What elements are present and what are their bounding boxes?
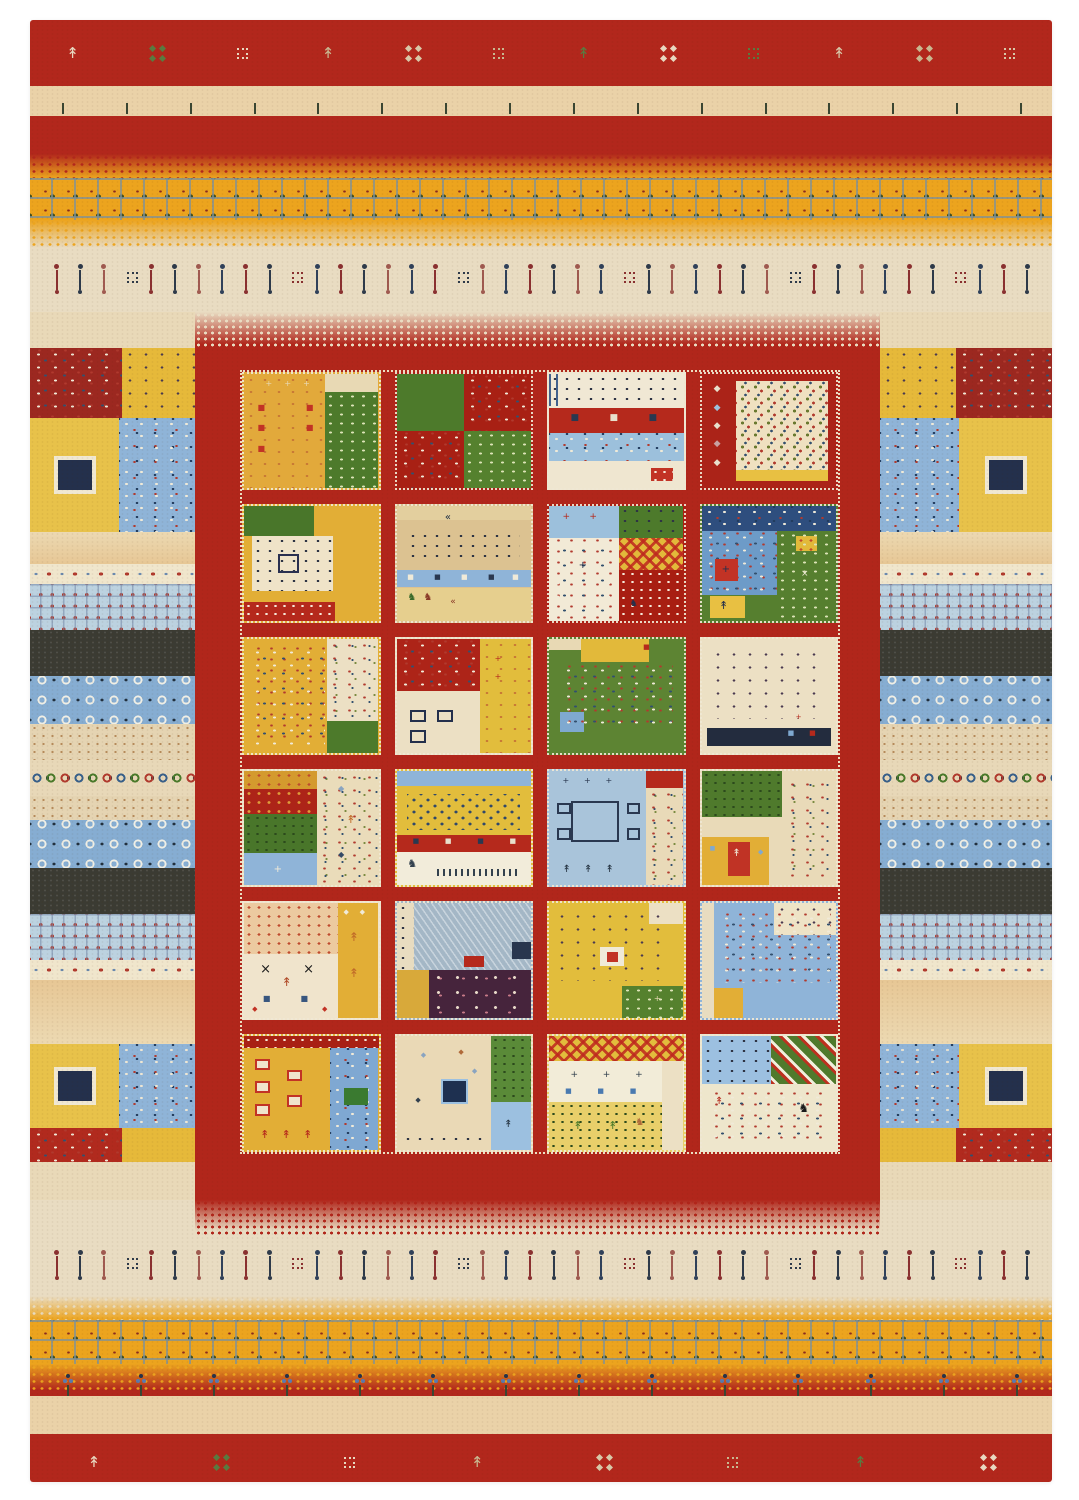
side-stripe-17 — [30, 1044, 195, 1128]
pin-motif-icon — [411, 270, 413, 290]
flower-motif-icon — [651, 1385, 653, 1396]
flower-motif-icon — [1016, 1385, 1018, 1396]
color-patch — [244, 506, 314, 536]
stripe-segment — [30, 1044, 119, 1128]
pin-motif-icon — [671, 270, 673, 290]
color-patch — [327, 639, 378, 721]
color-patch — [255, 1059, 270, 1070]
pin-motif-icon — [979, 270, 981, 290]
side-stripe-4 — [30, 532, 195, 564]
diamond-cluster-motif — [594, 1451, 616, 1473]
pin-motif-icon — [174, 270, 176, 290]
tree-icon: ↟ — [322, 46, 335, 61]
side-stripe-3 — [880, 418, 1052, 532]
diamond-cluster-icon — [154, 49, 161, 56]
square-motif-icon: ■ — [565, 1088, 572, 1095]
stripe-segment — [880, 980, 1052, 1044]
tree-motif-icon: ↟ — [719, 600, 728, 611]
cross-motif-icon: + — [303, 380, 310, 388]
flower-motif-icon — [701, 103, 703, 114]
side-stripe-13 — [30, 868, 195, 914]
flower-motif-icon — [765, 103, 767, 114]
stripe-segment — [30, 630, 195, 676]
diamond-cluster-motif — [658, 42, 680, 64]
pin-motif-icon — [198, 1256, 200, 1276]
stipple-gold-to-red — [30, 1364, 1052, 1390]
color-patch — [344, 1088, 368, 1105]
color-patch — [244, 602, 335, 620]
photo-canvas: ↟↟↟↟■■■■■+++■■■◆◆◆◆◆«■■■■■♞♞«+++♞+↟×++■■… — [0, 0, 1079, 1500]
x-motif-icon: × — [260, 963, 271, 976]
color-patch — [619, 506, 684, 538]
stripe-segment — [30, 1162, 195, 1200]
navy-square-motif — [985, 1067, 1027, 1105]
dotted-square-icon — [127, 1258, 138, 1269]
pin-motif-icon — [56, 270, 58, 290]
stripe-segment — [880, 348, 956, 418]
dotted-square-motif — [232, 42, 254, 64]
pin-motif-icon — [695, 1256, 697, 1276]
stipple-red-to-gold — [30, 154, 1052, 178]
color-patch — [736, 381, 827, 470]
flower-motif-icon — [254, 103, 256, 114]
side-stripe-18 — [30, 1128, 195, 1162]
tree-icon: ↟ — [66, 46, 79, 61]
side-stripe-10 — [880, 760, 1052, 796]
side-stripe-15 — [880, 960, 1052, 980]
cross-motif-icon: + — [495, 655, 502, 663]
dotted-square-icon — [292, 1258, 303, 1269]
cross-motif-icon: + — [589, 513, 597, 522]
animal-motif-icon: ♞ — [798, 1102, 809, 1114]
color-patch — [702, 531, 777, 595]
color-patch — [549, 433, 684, 460]
dotted-square-icon — [955, 272, 966, 283]
pin-motif-icon — [695, 270, 697, 290]
patchwork-cell-r4c3: +++↟↟↟ — [547, 769, 686, 887]
pin-motif-icon — [387, 270, 389, 290]
color-patch — [557, 828, 570, 839]
panel-bottom-stipple — [195, 1200, 880, 1236]
side-stripe-10 — [30, 760, 195, 796]
diamond-motif-icon: ◆ — [360, 909, 365, 916]
pin-motif-icon — [482, 1256, 484, 1276]
diamond-cluster-icon — [665, 49, 672, 56]
square-motif-icon: ■ — [809, 730, 816, 737]
side-stripe-17 — [880, 1044, 1052, 1128]
animal-motif-icon: ♞ — [635, 1118, 644, 1128]
side-stripe-2 — [880, 348, 1052, 418]
side-stripe-8 — [880, 676, 1052, 724]
dotted-square-icon — [493, 48, 504, 59]
stripe-segment — [30, 724, 195, 760]
tree-motif-icon: ↟ — [349, 931, 359, 943]
color-patch — [244, 814, 317, 853]
diamond-motif-icon: ◆ — [714, 459, 721, 468]
color-patch — [549, 374, 684, 408]
side-stripe-7 — [30, 630, 195, 676]
diamond-motif-icon: ◆ — [344, 909, 349, 916]
diamond-motif-icon: ◆ — [252, 1006, 257, 1013]
flower-motif-icon — [126, 103, 128, 114]
side-stripe-5 — [880, 564, 1052, 584]
dotted-square-icon — [790, 1258, 801, 1269]
flower-motif-icon — [573, 103, 575, 114]
color-patch — [397, 431, 464, 488]
tree-motif-icon: ↟ — [282, 976, 292, 988]
patchwork-cell-r3c2: ++ — [395, 637, 534, 755]
pin-motif-icon — [150, 1256, 152, 1276]
gold-lattice-band — [30, 1320, 1052, 1364]
pin-motif-icon — [221, 1256, 223, 1276]
ivory-pin-band — [30, 1236, 1052, 1296]
dotted-square-icon — [237, 48, 248, 59]
pin-motif-icon — [221, 270, 223, 290]
color-patch — [736, 470, 827, 481]
patchwork-cell-r6c2: ◆◆◆◆↟ — [395, 1034, 534, 1152]
animal-motif-icon: ♞ — [407, 593, 416, 603]
flower-motif-icon — [359, 1385, 361, 1396]
stripe-segment — [959, 1044, 1052, 1128]
stripe-segment — [30, 532, 195, 564]
dotted-square-icon — [344, 1457, 355, 1468]
diamond-cluster-motif — [977, 1451, 999, 1473]
pin-motif-icon — [742, 270, 744, 290]
tree-motif-icon: ↟ — [504, 1120, 512, 1130]
ivory-flower-stripe — [30, 1396, 1052, 1434]
pin-motif-icon — [813, 270, 815, 290]
color-patch — [571, 801, 619, 842]
cross-motif-icon: + — [562, 777, 569, 785]
square-motif-icon: ■ — [571, 414, 580, 423]
side-stripe-8 — [30, 676, 195, 724]
square-motif-icon: ■ — [434, 574, 441, 581]
stripe-segment — [880, 820, 1052, 868]
color-patch — [410, 730, 426, 743]
color-patch — [714, 988, 744, 1018]
stripe-segment — [880, 868, 1052, 914]
pin-motif-icon — [1003, 270, 1005, 290]
diamond-cluster-icon — [921, 49, 928, 56]
color-patch — [549, 639, 581, 650]
rug-midfield: ■■■■■+++■■■◆◆◆◆◆«■■■■■♞♞«+++♞+↟×++■■■++◆… — [30, 312, 1052, 1200]
color-patch — [338, 903, 378, 1017]
flower-motif-icon — [724, 1385, 726, 1396]
pin-motif-icon — [1003, 1256, 1005, 1276]
square-motif-icon: ■ — [610, 414, 619, 423]
color-patch — [464, 431, 531, 488]
tree-motif-icon: ↟ — [260, 1129, 269, 1140]
stripe-segment — [880, 676, 1052, 724]
dotted-square-icon — [790, 272, 801, 283]
pin-motif-icon — [269, 1256, 271, 1276]
flower-motif-icon — [956, 103, 958, 114]
square-motif-icon: ■ — [710, 846, 716, 852]
color-patch — [325, 392, 379, 488]
flower-motif-icon — [62, 103, 64, 114]
dotted-square-icon — [955, 1258, 966, 1269]
color-patch — [255, 1104, 270, 1115]
color-patch — [397, 970, 429, 1018]
color-patch — [707, 1091, 831, 1144]
flower-motif-icon — [892, 103, 894, 114]
color-patch — [397, 506, 532, 520]
color-patch — [560, 664, 673, 728]
pin-motif-icon — [837, 1256, 839, 1276]
dotted-square-icon — [127, 272, 138, 283]
color-patch — [244, 1036, 379, 1049]
patchwork-grid: ■■■■■+++■■■◆◆◆◆◆«■■■■■♞♞«+++♞+↟×++■■■++◆… — [240, 370, 840, 1154]
diamond-cluster-motif — [147, 42, 169, 64]
pin-motif-strip — [56, 267, 1027, 293]
pin-motif-icon — [932, 1256, 934, 1276]
square-motif-icon: ■ — [257, 404, 265, 412]
cross-motif-icon: + — [274, 865, 282, 875]
dotted-square-icon — [624, 1258, 635, 1269]
color-patch — [549, 374, 561, 406]
diamond-cluster-motif — [402, 42, 424, 64]
pin-motif-icon — [505, 270, 507, 290]
pin-motif-strip — [56, 1253, 1027, 1279]
color-patch — [397, 639, 480, 692]
diamond-cluster-icon — [985, 1458, 992, 1465]
square-motif-icon: ■ — [461, 574, 468, 581]
cross-motif-icon: + — [266, 380, 273, 388]
flower-motif-icon — [943, 1385, 945, 1396]
side-stripe-12 — [30, 820, 195, 868]
patchwork-cell-r3c1 — [242, 637, 381, 755]
tree-icon: ↟ — [854, 1455, 867, 1470]
color-patch — [581, 639, 648, 662]
color-patch — [464, 956, 484, 967]
color-patch — [512, 942, 531, 959]
color-patch — [249, 646, 324, 747]
pin-motif-icon — [56, 1256, 58, 1276]
stripe-segment — [30, 348, 122, 418]
stipple-ivory-to-gold — [30, 1296, 1052, 1320]
border-motif-row: ↟↟↟ — [30, 1446, 1052, 1478]
patchwork-cell-r6c3: +++■■■↟↟♞ — [547, 1034, 686, 1152]
patchwork-cell-r3c3: ■ — [547, 637, 686, 755]
square-motif-icon: ■ — [788, 730, 795, 737]
ivory-pin-band — [30, 248, 1052, 312]
side-stripe-5 — [30, 564, 195, 584]
side-stripe-14 — [880, 914, 1052, 960]
tree-motif-icon: ↟ — [562, 865, 570, 875]
cross-motif-icon: + — [605, 777, 612, 785]
animal-motif-icon: ♞ — [630, 600, 638, 609]
side-stripe-18 — [880, 1128, 1052, 1162]
side-stripe-6 — [880, 584, 1052, 630]
tree-motif-icon: ↟ — [282, 1129, 291, 1140]
color-patch — [710, 648, 828, 719]
pin-motif-icon — [908, 1256, 910, 1276]
color-patch — [491, 1036, 531, 1102]
cross-motif-icon: + — [284, 380, 291, 388]
color-patch — [619, 570, 684, 620]
side-stripe-column-right — [880, 312, 1052, 1200]
color-patch — [622, 986, 684, 1018]
stripe-segment — [30, 980, 195, 1044]
dotted-square-icon — [748, 48, 759, 59]
tree-motif-icon: ↟ — [608, 1120, 617, 1131]
flower-motif-icon — [505, 1385, 507, 1396]
patchwork-cell-r1c2 — [395, 372, 534, 490]
patchwork-cell-r5c2 — [395, 901, 534, 1019]
pin-motif-icon — [434, 270, 436, 290]
pin-motif-icon — [719, 270, 721, 290]
square-motif-icon: ■ — [643, 644, 650, 651]
stripe-segment — [880, 564, 1052, 584]
tree-motif-icon: ↟ — [346, 814, 355, 825]
pin-motif-icon — [671, 1256, 673, 1276]
pin-motif-icon — [553, 270, 555, 290]
dotted-square-icon — [292, 272, 303, 283]
stripe-segment — [956, 348, 1052, 418]
gabbeh-rug-photo: ↟↟↟↟■■■■■+++■■■◆◆◆◆◆«■■■■■♞♞«+++♞+↟×++■■… — [30, 20, 1052, 1482]
stripe-segment — [30, 564, 195, 584]
side-stripe-11 — [880, 796, 1052, 820]
cross-motif-icon: + — [584, 777, 591, 785]
patchwork-cell-r2c1 — [242, 504, 381, 622]
pin-motif-icon — [411, 1256, 413, 1276]
diamond-cluster-motif — [211, 1451, 233, 1473]
flower-motif-icon — [637, 103, 639, 114]
color-patch — [397, 903, 414, 969]
patchwork-cell-r6c4: ♞↟ — [700, 1034, 839, 1152]
tree-motif-icon: ↟ — [715, 1097, 723, 1107]
stripe-segment — [880, 960, 1052, 980]
flower-motif-icon — [213, 1385, 215, 1396]
dotted-square-motif — [338, 1451, 360, 1473]
tree-icon: ↟ — [833, 46, 846, 61]
diamond-motif-icon: ◆ — [415, 1097, 420, 1104]
square-motif-icon: ■ — [300, 995, 308, 1003]
pin-motif-icon — [79, 270, 81, 290]
flower-motif-icon — [432, 1385, 434, 1396]
side-stripe-15 — [30, 960, 195, 980]
pin-motif-icon — [577, 1256, 579, 1276]
stripe-segment — [959, 418, 1052, 532]
color-patch — [244, 903, 338, 953]
cross-motif-icon: + — [571, 1071, 579, 1080]
pin-motif-icon — [884, 270, 886, 290]
side-stripe-9 — [880, 724, 1052, 760]
dotted-square-motif — [743, 42, 765, 64]
color-patch — [437, 869, 520, 876]
color-patch — [244, 789, 317, 814]
patchwork-cell-r4c4: ↟■◆ — [700, 769, 839, 887]
diamond-cluster-icon — [218, 1458, 225, 1465]
stripe-segment — [880, 584, 1052, 630]
cross-motif-icon: + — [562, 513, 570, 522]
stripe-segment — [880, 1162, 1052, 1200]
color-patch — [785, 778, 831, 879]
color-patch — [702, 506, 837, 531]
color-patch — [464, 374, 531, 431]
patchwork-cell-r2c4: +↟× — [700, 504, 839, 622]
pin-motif-icon — [1026, 1256, 1028, 1276]
flower-motif-icon — [67, 1385, 69, 1396]
side-stripe-19 — [30, 1162, 195, 1200]
square-motif-icon: ■ — [306, 404, 314, 412]
stripe-segment — [119, 1044, 195, 1128]
pin-motif-icon — [269, 270, 271, 290]
stripe-segment — [880, 312, 1052, 348]
stripe-segment — [30, 1128, 122, 1162]
color-patch — [771, 1036, 836, 1084]
patchwork-cell-r3c4: ■■+ — [700, 637, 839, 755]
color-patch — [278, 554, 300, 572]
square-motif-icon: ■ — [257, 424, 265, 432]
tree-motif-icon: ↟ — [584, 865, 592, 875]
pin-motif-icon — [316, 1256, 318, 1276]
flower-motif-icon — [509, 103, 511, 114]
stripe-segment — [30, 914, 195, 960]
pin-motif-icon — [245, 270, 247, 290]
stripe-segment — [30, 584, 195, 630]
stripe-segment — [119, 418, 195, 532]
diamond-motif-icon: ◆ — [714, 422, 721, 431]
square-motif-icon: ■ — [509, 838, 516, 845]
diamond-motif-icon: ◆ — [714, 385, 721, 394]
tree-motif-icon: ↟ — [732, 849, 740, 859]
color-patch — [619, 538, 684, 570]
ivory-band-below-panel — [30, 1200, 1052, 1236]
tree-motif-icon: ↟ — [605, 865, 613, 875]
color-patch — [441, 1079, 468, 1104]
stripe-segment — [956, 1128, 1052, 1162]
tree-motif-icon: ↟ — [349, 967, 359, 979]
diamond-motif-icon: ◆ — [338, 851, 344, 859]
flower-motif-icon — [870, 1385, 872, 1396]
color-patch — [627, 803, 640, 814]
dotted-square-motif — [722, 1451, 744, 1473]
tree-motif: ↟ — [849, 1451, 871, 1473]
tree-motif: ↟ — [317, 42, 339, 64]
flower-motif-icon — [190, 103, 192, 114]
pin-motif-icon — [766, 1256, 768, 1276]
flower-motif-icon — [445, 103, 447, 114]
square-motif-icon: ■ — [407, 574, 414, 581]
patchwork-cell-r2c2: «■■■■■♞♞« — [395, 504, 534, 622]
color-patch — [646, 788, 684, 885]
tree-icon: ↟ — [88, 1455, 101, 1470]
color-patch — [429, 970, 531, 1018]
stripe-segment — [122, 348, 195, 418]
cross-motif-icon: + — [579, 561, 587, 571]
color-patch — [702, 903, 714, 1017]
stripe-segment — [30, 676, 195, 724]
ivory-hang-flower-stripe — [30, 86, 1052, 116]
pin-motif-icon — [103, 1256, 105, 1276]
side-stripe-6 — [30, 584, 195, 630]
pin-motif-icon — [861, 1256, 863, 1276]
color-patch — [287, 1095, 302, 1106]
pin-motif-icon — [482, 270, 484, 290]
pin-motif-icon — [577, 270, 579, 290]
stripe-segment — [122, 1128, 195, 1162]
square-motif-icon: ■ — [597, 1088, 604, 1095]
tree-motif: ↟ — [83, 1451, 105, 1473]
diamond-motif-icon: ◆ — [758, 849, 763, 856]
flower-motif-icon — [317, 103, 319, 114]
stripe-segment — [30, 418, 119, 532]
side-stripe-12 — [880, 820, 1052, 868]
pin-motif-icon — [553, 1256, 555, 1276]
pin-motif-icon — [766, 270, 768, 290]
arrow-motif-icon: « — [445, 513, 451, 523]
